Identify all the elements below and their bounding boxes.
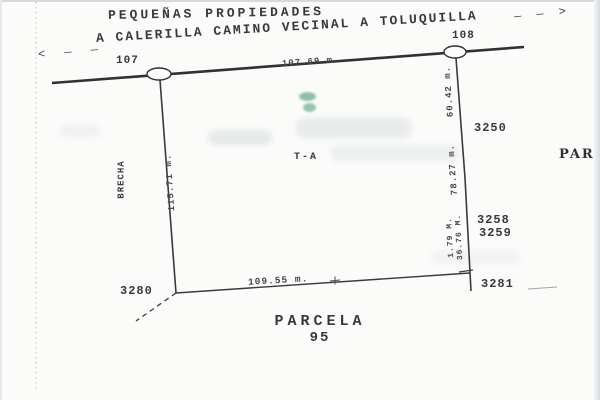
point-label-3258: 3258 <box>477 214 510 226</box>
east-boundary-tick <box>459 270 473 272</box>
survey-monument-107 <box>147 68 171 80</box>
interior-ta-label: T-A <box>294 153 318 163</box>
stray-mark <box>528 287 557 289</box>
parcel-number: 95 <box>250 331 390 345</box>
scanned-parcel-plan: PEQUEÑAS PROPIEDADES A CALERILLA CAMINO … <box>0 0 600 400</box>
survey-monument-108 <box>444 46 466 58</box>
point-label-107: 107 <box>116 56 139 67</box>
point-label-3281: 3281 <box>481 278 514 290</box>
parcel-title: PARCELA 95 <box>250 314 390 345</box>
south-boundary-tick <box>330 277 340 285</box>
adjacent-parcel-partial-label: PAR <box>559 148 595 161</box>
parcel-word: PARCELA <box>250 314 390 329</box>
east-lower-measurement: 1.79 M. 36.76 M. <box>445 214 466 261</box>
point-label-3250: 3250 <box>474 122 507 134</box>
point-label-3259: 3259 <box>479 227 512 239</box>
brecha-path-label: BRECHA <box>118 160 127 198</box>
south-boundary-line <box>176 273 470 293</box>
point-label-108: 108 <box>452 31 475 42</box>
point-label-3280: 3280 <box>120 285 153 297</box>
